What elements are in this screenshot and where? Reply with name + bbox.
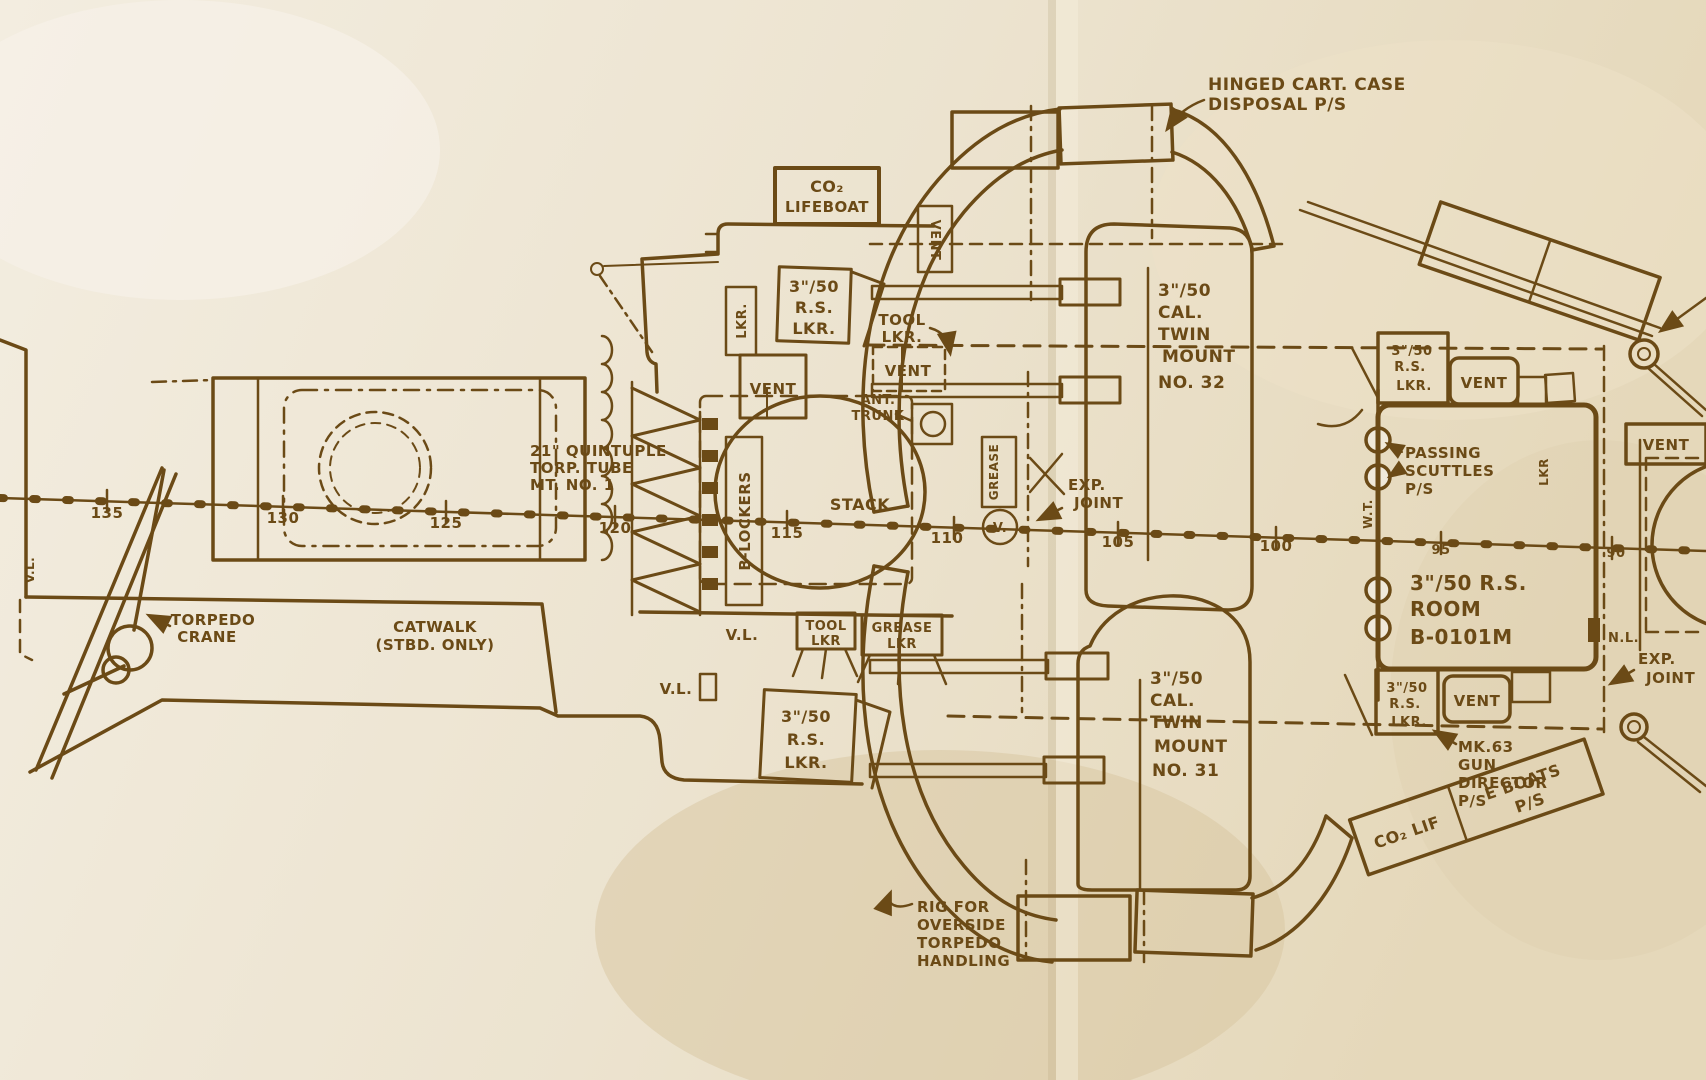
catwalk-label-2: (STBD. ONLY) <box>376 636 495 654</box>
rs-lkr-mid-1: 3"/50 <box>789 277 839 296</box>
grease-lkr-vert-label-1: GREASE <box>987 444 1001 500</box>
exp-joint-mid-2: JOINT <box>1073 494 1123 512</box>
rs-room-label-1: 3"/50 R.S. <box>1410 571 1527 595</box>
vent-room-bottom-label: VENT <box>1454 692 1501 710</box>
tool-box-label-2: LKR <box>811 634 841 649</box>
co2-lifeboat-label-2: LIFEBOAT <box>785 198 869 216</box>
hinged-cart-label-1: HINGED CART. CASE <box>1208 75 1406 95</box>
mount31-label-3: TWIN <box>1150 713 1203 733</box>
rs-room-label-3: B-0101M <box>1410 625 1513 649</box>
catwalk-label-1: CATWALK <box>393 618 478 636</box>
mk63-label-1: MK.63 <box>1458 738 1514 756</box>
mount32-label-3: TWIN <box>1158 325 1211 345</box>
mk63-label-4: P/S <box>1458 792 1487 810</box>
vent-dashed-label: VENT <box>885 362 932 380</box>
vl-mid-label: V.L. <box>726 626 759 644</box>
torp-tube-label-1: 21" QUINTUPLE <box>530 442 667 460</box>
rs-lkr-room-top-1: 3"/50 <box>1391 344 1432 359</box>
frame-label-110: 110 <box>931 529 964 547</box>
frame-label-130: 130 <box>267 509 300 527</box>
blueprint-page: 135 130 125 120 115 110 105 100 95 90 HI… <box>0 0 1706 1080</box>
vent-left-label: VENT <box>750 380 797 398</box>
deck-plan-drawing: 135 130 125 120 115 110 105 100 95 90 HI… <box>0 0 1706 1080</box>
vent-vertical-label: VENT <box>927 220 942 261</box>
b-lockers-label: B-LOCKERS <box>736 471 754 570</box>
torp-tube-label-3: MT. NO. 1 <box>530 476 615 494</box>
exp-joint-mid-1: EXP. <box>1068 476 1106 494</box>
frame-label-105: 105 <box>1102 533 1135 551</box>
rs-lkr-mid-3: LKR. <box>792 319 835 338</box>
rs-lkr-mid-2: R.S. <box>795 298 833 317</box>
mount31-label-1: 3"/50 <box>1150 669 1203 689</box>
rig-label-2: OVERSIDE <box>917 916 1006 934</box>
mount32-label-1: 3"/50 <box>1158 281 1211 301</box>
mount32-label-5: NO. 32 <box>1158 373 1225 393</box>
hinged-cart-label-2: DISPOSAL P/S <box>1208 95 1347 115</box>
ant-trunk-label-1: ANT. <box>861 393 896 408</box>
mount31-label-4: MOUNT <box>1154 737 1228 757</box>
exp-joint-right-2: JOINT <box>1645 669 1695 687</box>
nl-label: N.L. <box>1608 631 1639 646</box>
lkr-vertical-label: LKR. <box>735 303 750 339</box>
wt-bulkhead-label: W.T. <box>1361 499 1375 529</box>
rig-label-3: TORPEDO <box>917 934 1001 952</box>
frame-label-90: 90 <box>1606 546 1625 561</box>
vl-left-label: V.L. <box>23 557 37 584</box>
rs-lkr-room-bot-1: 3"/50 <box>1386 681 1427 696</box>
grease-box-label-1: GREASE <box>872 621 933 636</box>
tool-lkr-upper-1: TOOL <box>878 311 925 329</box>
vent-far-right-label: VENT <box>1643 436 1690 454</box>
rig-label-4: HANDLING <box>917 952 1010 970</box>
rs-lkr-bottom-3: LKR. <box>784 753 827 772</box>
frame-label-120: 120 <box>599 519 632 537</box>
mount32-label-4: MOUNT <box>1162 347 1236 367</box>
v-symbol-label: V. <box>993 521 1007 536</box>
rs-lkr-bottom-1: 3"/50 <box>781 707 831 726</box>
frame-label-100: 100 <box>1260 537 1293 555</box>
torpedo-crane-label-1: TORPEDO <box>171 611 255 629</box>
rs-room-label-2: ROOM <box>1410 597 1481 621</box>
exp-joint-right-1: EXP. <box>1638 650 1676 668</box>
torpedo-crane-label-2: CRANE <box>177 628 236 646</box>
grease-lkr-vert-label-2: LKR <box>1537 458 1551 486</box>
frame-label-135: 135 <box>91 504 124 522</box>
mk63-label-2: GUN <box>1458 756 1497 774</box>
torp-tube-label-2: TORP. TUBE <box>530 459 633 477</box>
rs-lkr-bottom-2: R.S. <box>787 730 825 749</box>
tool-box-label-1: TOOL <box>805 619 846 634</box>
rs-lkr-room-bot-2: R.S. <box>1389 697 1421 712</box>
rs-lkr-room-top-2: R.S. <box>1394 360 1426 375</box>
rs-lkr-room-top-3: LKR. <box>1396 379 1432 394</box>
passing-scuttles-3: P/S <box>1405 480 1434 498</box>
frame-label-95: 95 <box>1431 543 1450 558</box>
frame-label-115: 115 <box>771 524 804 542</box>
ant-trunk-label-2: TRUNK <box>852 409 905 424</box>
passing-scuttles-1: PASSING <box>1405 444 1481 462</box>
mount31-label-2: CAL. <box>1150 691 1195 711</box>
mount32-label-2: CAL. <box>1158 303 1203 323</box>
frame-label-125: 125 <box>430 514 463 532</box>
rs-lkr-room-bot-3: LKR. <box>1391 715 1427 730</box>
vl-box-label: V.L. <box>660 680 693 698</box>
co2-lifeboat-label-1: CO₂ <box>810 177 844 196</box>
grease-box-label-2: LKR <box>887 637 917 652</box>
vent-room-top-label: VENT <box>1461 374 1508 392</box>
passing-scuttles-2: SCUTTLES <box>1405 462 1494 480</box>
stack-label: STACK <box>830 495 890 514</box>
tool-lkr-upper-2: LKR. <box>882 328 923 346</box>
mount31-label-5: NO. 31 <box>1152 761 1219 781</box>
rig-label-1: RIG FOR <box>917 898 990 916</box>
